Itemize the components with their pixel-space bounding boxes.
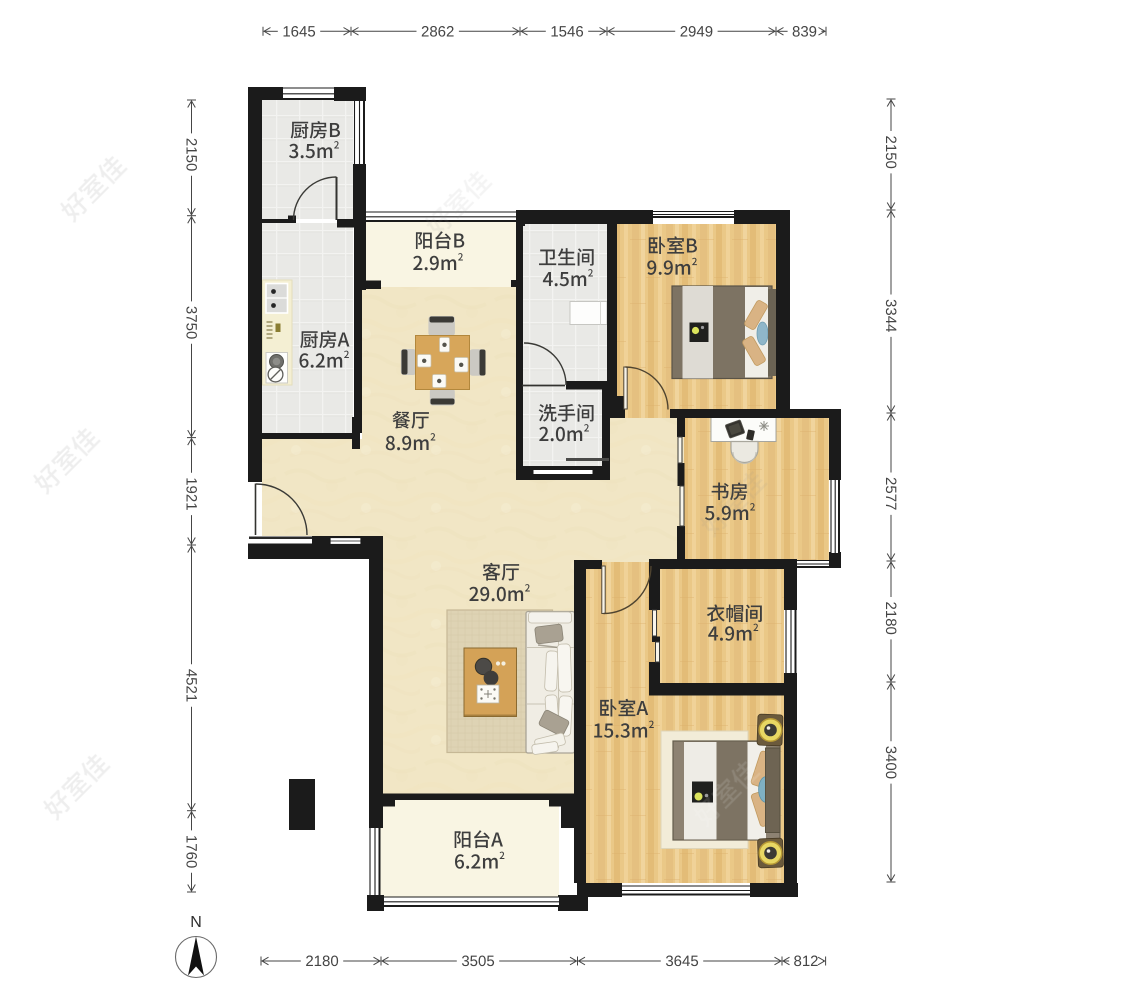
- svg-text:839: 839: [792, 23, 817, 40]
- svg-text:2577: 2577: [882, 477, 899, 510]
- svg-text:2180: 2180: [882, 602, 899, 635]
- svg-text:2150: 2150: [183, 138, 200, 171]
- svg-text:2949: 2949: [680, 23, 713, 40]
- svg-text:1546: 1546: [550, 23, 583, 40]
- svg-text:3505: 3505: [461, 953, 494, 970]
- svg-text:3645: 3645: [665, 953, 698, 970]
- svg-text:2180: 2180: [305, 953, 338, 970]
- svg-text:3400: 3400: [882, 746, 899, 779]
- svg-text:1645: 1645: [282, 23, 315, 40]
- svg-text:2862: 2862: [421, 23, 454, 40]
- svg-text:2150: 2150: [882, 136, 899, 169]
- svg-text:3750: 3750: [183, 306, 200, 339]
- svg-text:4521: 4521: [183, 669, 200, 702]
- svg-text:1760: 1760: [183, 835, 200, 868]
- svg-text:3344: 3344: [882, 299, 899, 332]
- svg-text:812: 812: [793, 953, 818, 970]
- svg-text:1921: 1921: [183, 477, 200, 510]
- svg-text:N: N: [190, 914, 202, 931]
